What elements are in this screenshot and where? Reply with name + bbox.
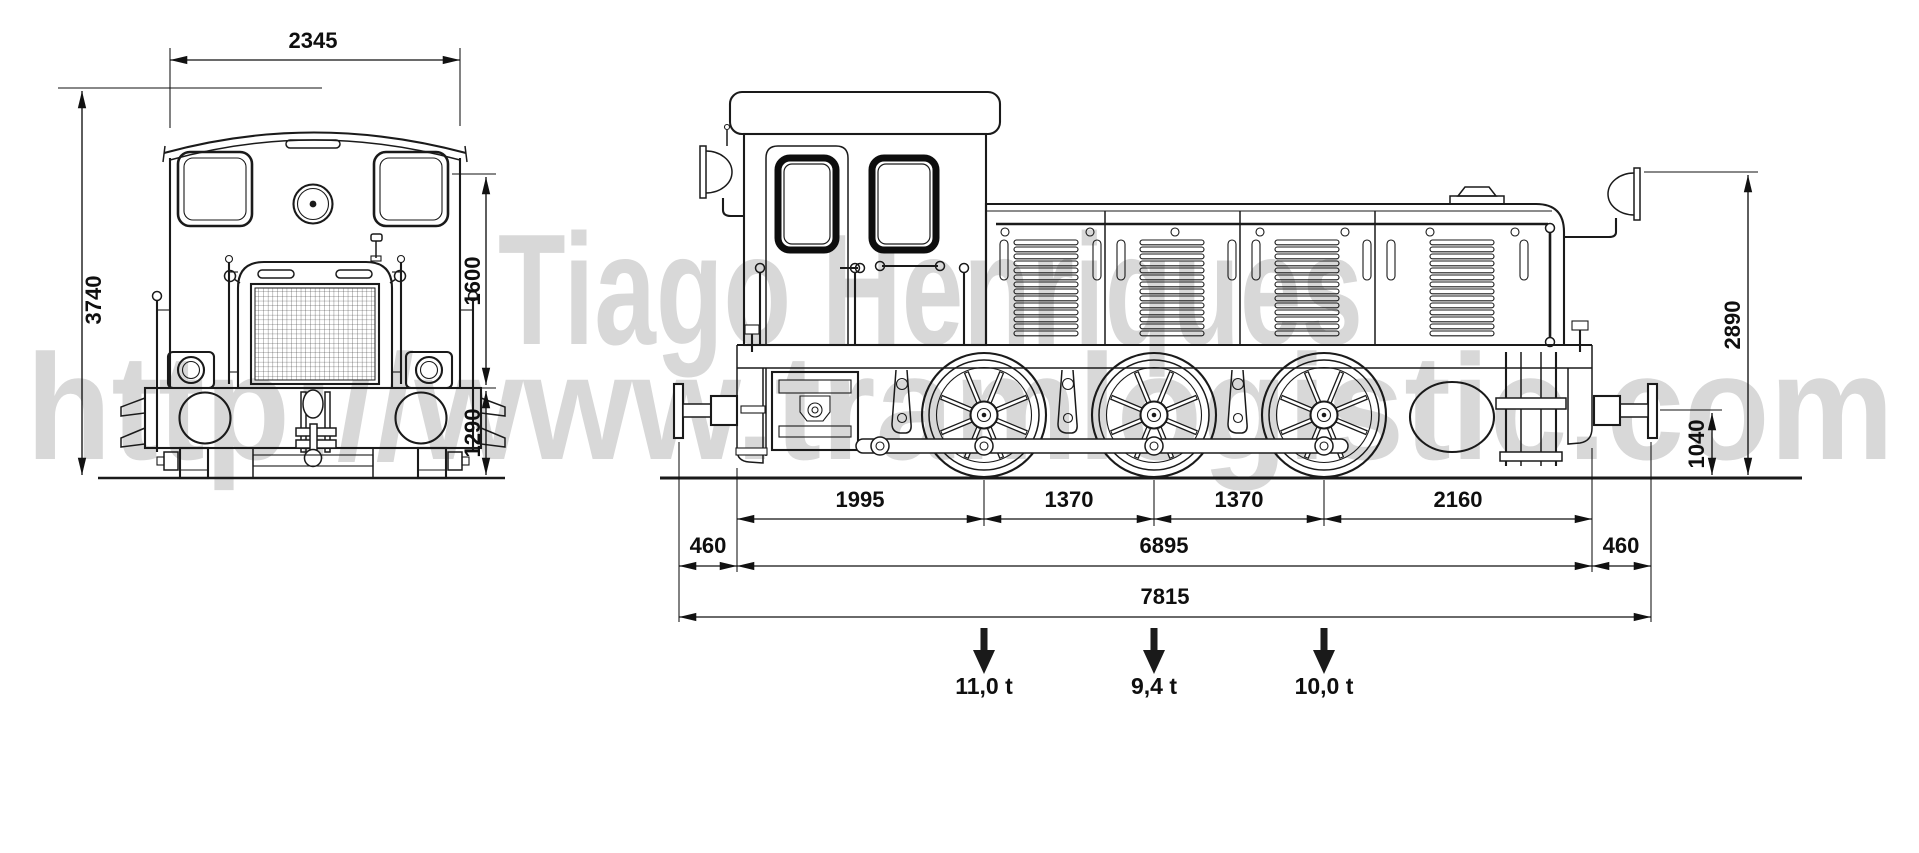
axle-loads: 11,0 t 9,4 t 10,0 t [955, 628, 1354, 699]
dim-2160: 2160 [1434, 487, 1483, 512]
dim-7815: 7815 [1141, 584, 1190, 609]
front-radiator-grille [251, 284, 379, 384]
louver-panel-4 [1430, 240, 1494, 336]
front-valve [371, 234, 382, 261]
dim-3740: 3740 [81, 276, 106, 325]
dim-1040: 1040 [1684, 420, 1709, 469]
dim-1995: 1995 [836, 487, 885, 512]
axle-load-2: 9,4 t [1131, 673, 1177, 699]
dim-460-right: 460 [1603, 533, 1640, 558]
front-window-right [374, 152, 448, 226]
dim-1370-a: 1370 [1045, 487, 1094, 512]
front-hood-slot-right [336, 270, 372, 278]
dim-1600: 1600 [460, 257, 485, 306]
dim-6895: 6895 [1140, 533, 1189, 558]
dim-2345: 2345 [289, 28, 338, 53]
dim-1290: 1290 [460, 409, 485, 458]
drawing-page: Tiago Henriques http://www.tramlogistic.… [0, 0, 1919, 853]
axle-load-3: 10,0 t [1295, 673, 1354, 699]
front-window-left [178, 152, 252, 226]
dim-1370-b: 1370 [1215, 487, 1264, 512]
side-cab-roof [730, 92, 1000, 134]
coupling-rod [856, 439, 1348, 453]
axle-load-arrow-1 [973, 628, 995, 674]
front-headlight [294, 185, 333, 224]
axle-load-1: 11,0 t [955, 673, 1013, 699]
dim-2890: 2890 [1720, 301, 1745, 350]
side-door-window [778, 158, 836, 250]
front-roof-vent [286, 140, 340, 148]
front-roof-inner [170, 140, 460, 160]
side-cab-window [872, 158, 936, 250]
locomotive-technical-drawing: Tiago Henriques http://www.tramlogistic.… [0, 0, 1919, 853]
axle-load-arrow-3 [1313, 628, 1335, 674]
dim-460-left: 460 [690, 533, 727, 558]
axle-load-arrow-2 [1143, 628, 1165, 674]
front-lamp [1564, 168, 1640, 237]
exhaust-cap [1450, 187, 1504, 204]
front-hood-slot-left [258, 270, 294, 278]
